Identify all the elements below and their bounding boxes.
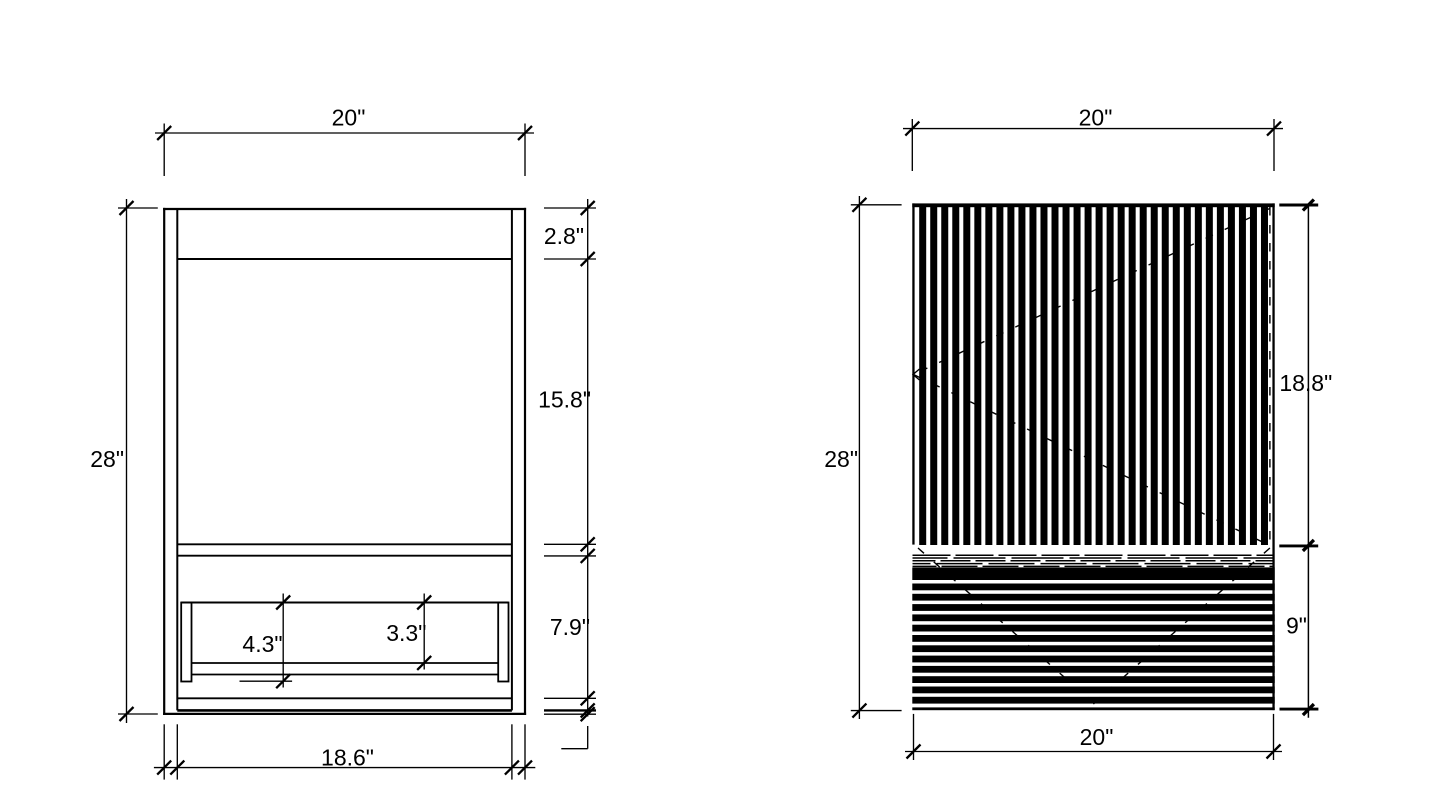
svg-text:18.8": 18.8"	[1279, 370, 1332, 396]
svg-text:3.3": 3.3"	[386, 620, 426, 646]
svg-text:18.6": 18.6"	[321, 744, 374, 770]
svg-text:2.8": 2.8"	[544, 223, 584, 249]
svg-text:20": 20"	[1079, 105, 1113, 131]
svg-text:20": 20"	[332, 105, 366, 131]
svg-text:15.8": 15.8"	[538, 387, 591, 413]
svg-text:20": 20"	[1080, 724, 1114, 750]
svg-text:28": 28"	[90, 446, 124, 472]
svg-text:9": 9"	[1286, 612, 1307, 638]
svg-text:4.3": 4.3"	[242, 631, 282, 657]
svg-text:28": 28"	[824, 446, 858, 472]
svg-text:7.9": 7.9"	[550, 614, 590, 640]
